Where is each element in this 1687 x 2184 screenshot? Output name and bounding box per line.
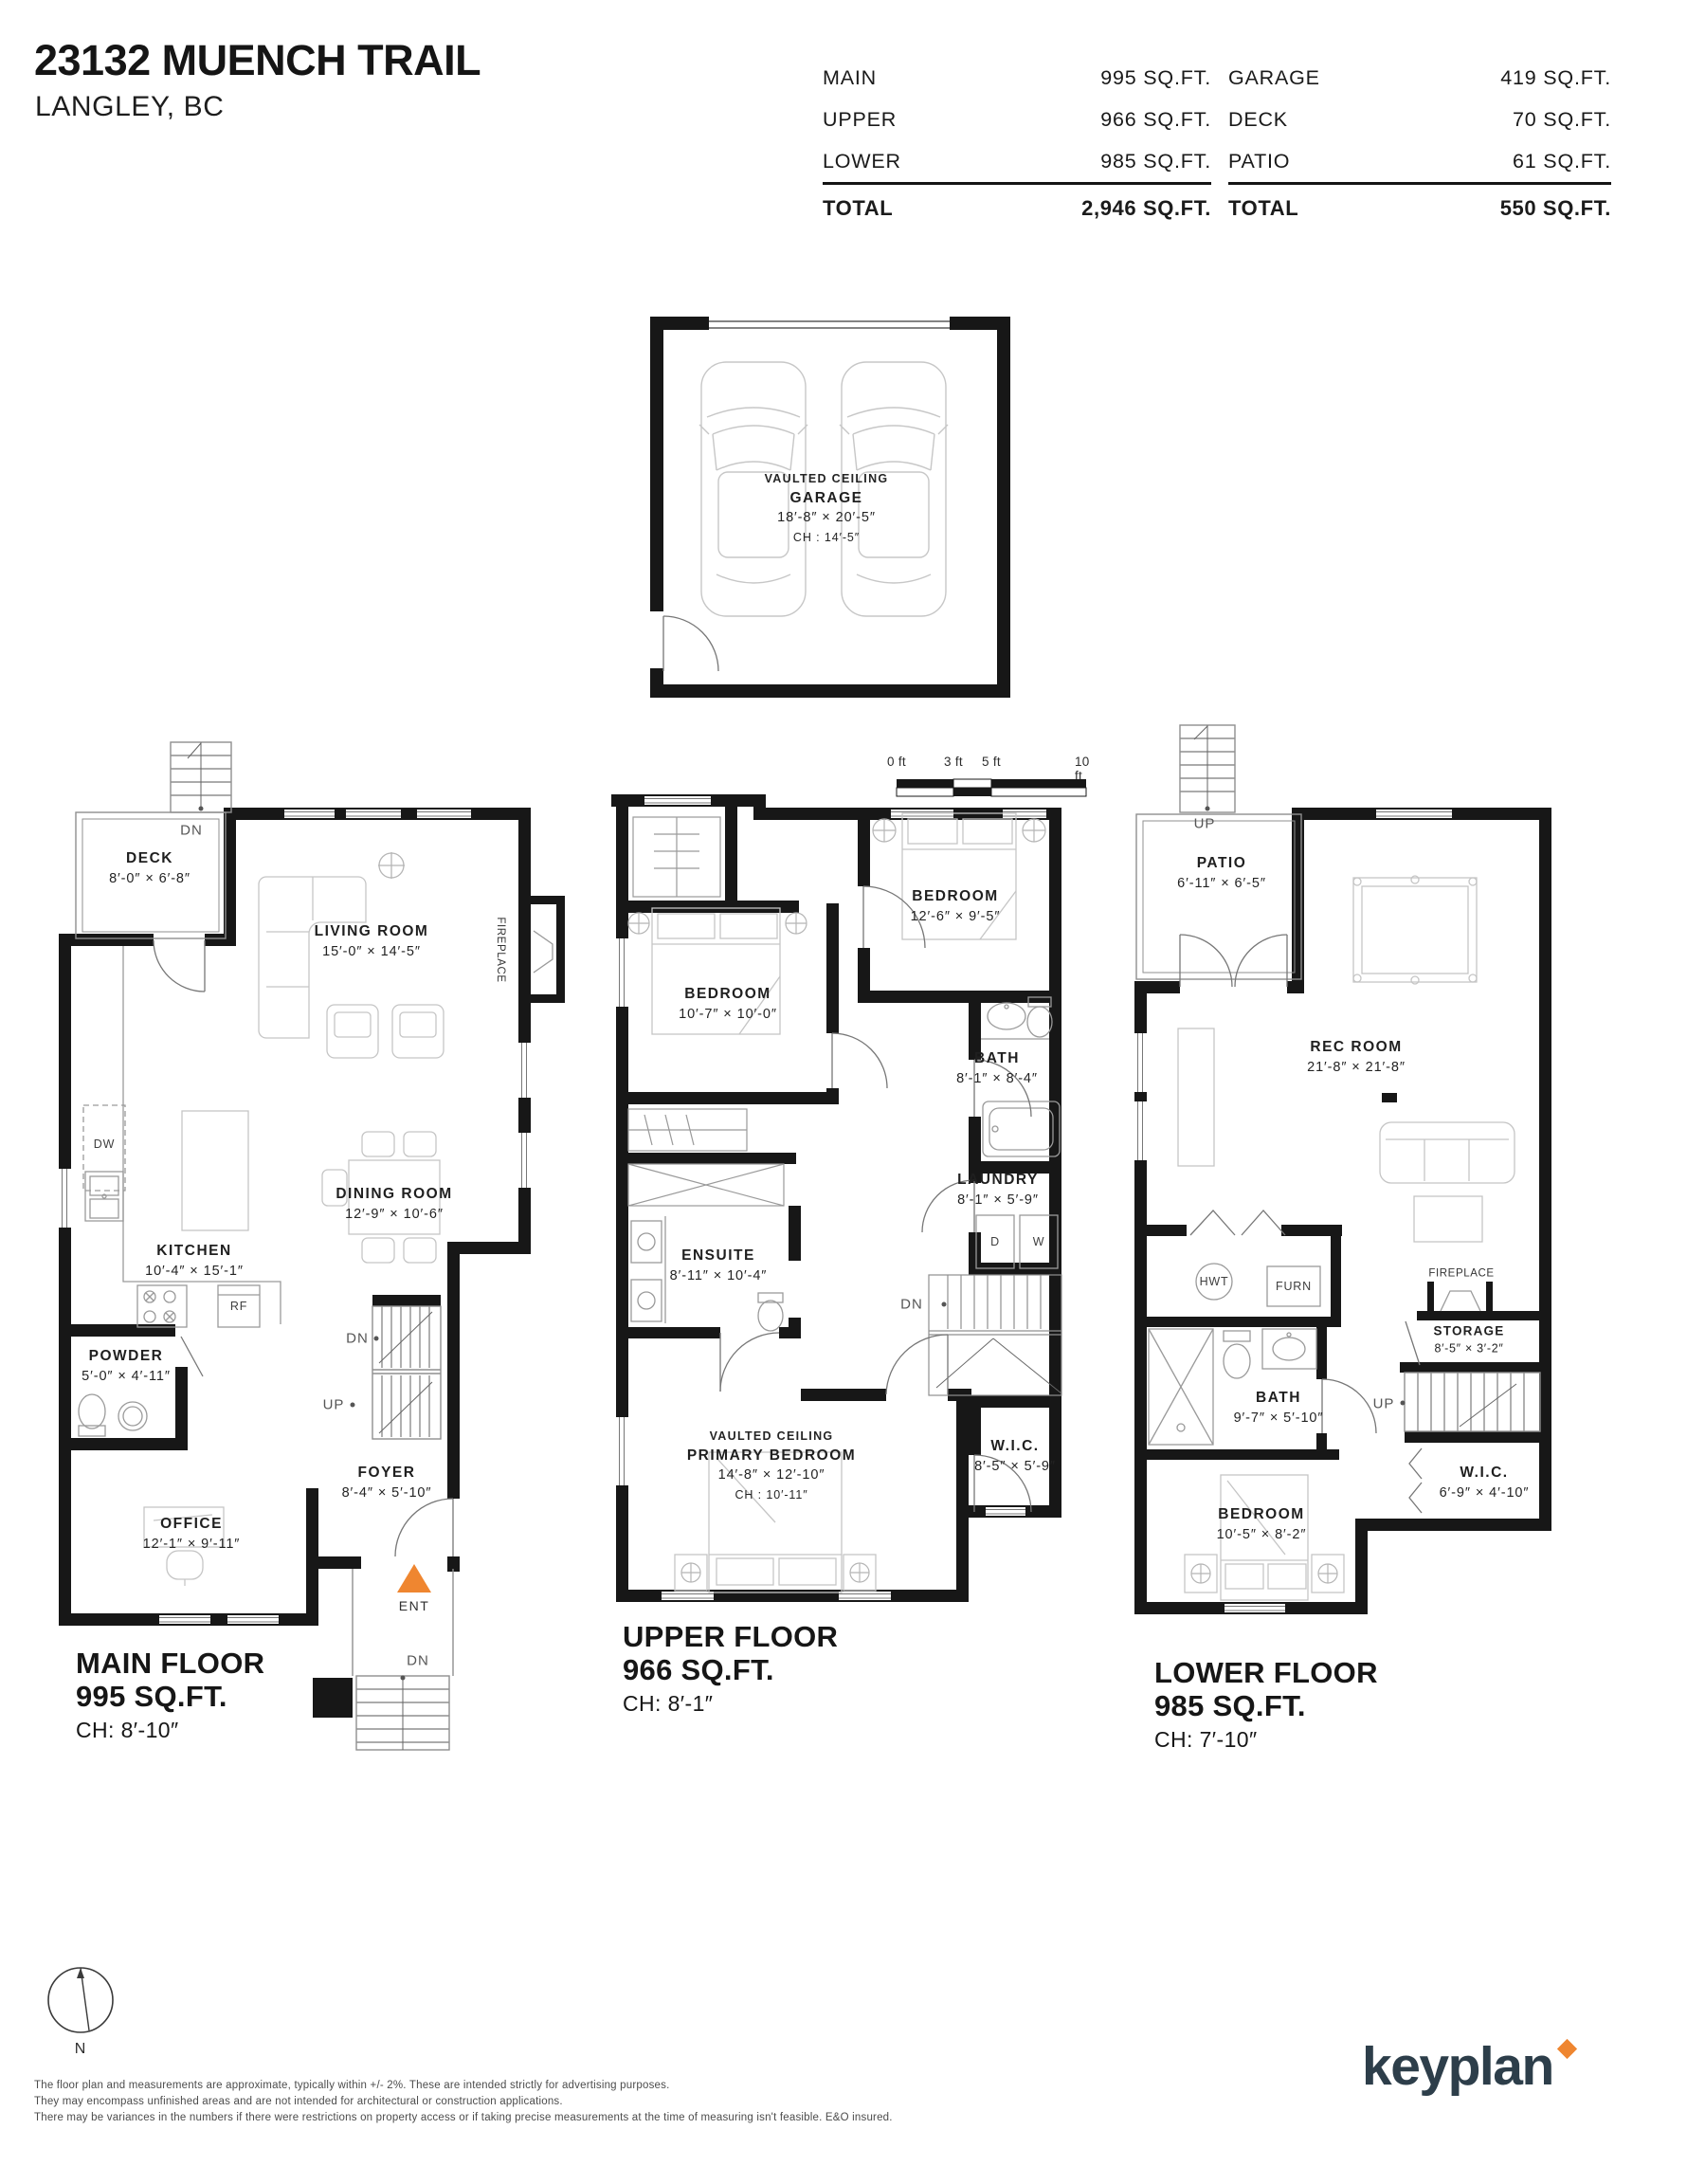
- floor-plan-page: 23132 MUENCH TRAIL LANGLEY, BC MAIN 995 …: [0, 0, 1687, 2184]
- scale-tick: 5 ft: [982, 755, 1001, 769]
- fireplace-label: FIREPLACE: [494, 917, 505, 982]
- main-deck-and-stairs: [76, 742, 453, 1750]
- dishwasher-label: DW: [94, 1138, 115, 1151]
- entry-arrow-icon: [397, 1564, 431, 1592]
- upper-floor-title: UPPER FLOOR 966 SQ.FT. CH: 8′-1″: [623, 1621, 838, 1717]
- lower-floor-title: LOWER FLOOR 985 SQ.FT. CH: 7′-10″: [1154, 1657, 1378, 1753]
- property-city: LANGLEY, BC: [35, 91, 224, 123]
- room-label-dining-room: DINING ROOM 12′-9″ × 10′-6″: [336, 1187, 452, 1221]
- washer-label: W: [1033, 1236, 1045, 1248]
- room-label-bedroom: BEDROOM 10′-7″ × 10′-0″: [679, 987, 777, 1021]
- room-label-bedroom: BEDROOM 12′-6″ × 9′-5″: [911, 889, 1001, 923]
- main-walls: [59, 808, 565, 1718]
- keyplan-logo-mark-icon: [1557, 2039, 1577, 2059]
- room-label-rec-room: REC ROOM 21′-8″ × 21′-8″: [1307, 1040, 1406, 1074]
- table-row: DECK 70 SQ.FT.: [1228, 99, 1611, 140]
- room-label-powder: POWDER 5′-0″ × 4′-11″: [82, 1349, 171, 1383]
- room-label-foyer: FOYER 8′-4″ × 5′-10″: [342, 1465, 432, 1500]
- scale-tick: 0 ft: [887, 755, 906, 769]
- stairs-dn-label: DN: [346, 1332, 369, 1346]
- dryer-label: D: [990, 1236, 1000, 1248]
- stairs-dn-label: DN: [900, 1298, 923, 1312]
- lower-doors: [1180, 935, 1422, 1513]
- room-label-storage: STORAGE 8′-5″ × 3′-2″: [1434, 1325, 1505, 1355]
- room-label-primary-bedroom: VAULTED CEILING PRIMARY BEDROOM 14′-8″ ×…: [687, 1430, 856, 1501]
- room-label-bedroom: BEDROOM 10′-5″ × 8′-2″: [1217, 1507, 1307, 1541]
- hot-water-tank-label: HWT: [1200, 1276, 1229, 1288]
- fridge-label: RF: [230, 1301, 247, 1313]
- room-label-kitchen: KITCHEN 10′-4″ × 15′-1″: [145, 1244, 244, 1278]
- room-label-bath: BATH 8′-1″ × 8′-4″: [956, 1051, 1038, 1085]
- stairs-up-label: UP: [323, 1398, 345, 1412]
- room-label-bath: BATH 9′-7″ × 5′-10″: [1234, 1391, 1324, 1425]
- room-label-deck: DECK 8′-0″ × 6′-8″: [109, 851, 190, 885]
- garage-entry-door: [663, 616, 718, 671]
- scale-tick: 3 ft: [944, 755, 963, 769]
- table-row: PATIO 61 SQ.FT.: [1228, 140, 1611, 182]
- room-label-office: OFFICE 12′-1″ × 9′-11″: [143, 1517, 241, 1551]
- lower-lamp-symbols: [1191, 1564, 1337, 1583]
- property-address: 23132 MUENCH TRAIL: [34, 36, 481, 85]
- stairs-up-label: UP: [1194, 817, 1216, 831]
- main-floor-title: MAIN FLOOR 995 SQ.FT. CH: 8′-10″: [76, 1647, 264, 1743]
- table-total-row: TOTAL 2,946 SQ.FT.: [823, 182, 1211, 232]
- table-row: LOWER 985 SQ.FT.: [823, 140, 1211, 182]
- room-label-ensuite: ENSUITE 8′-11″ × 10′-4″: [670, 1248, 768, 1283]
- stairs-up-label: UP: [1373, 1397, 1395, 1411]
- compass-north-label: N: [75, 2042, 87, 2057]
- stairs-dn-label: DN: [180, 824, 203, 838]
- room-label-garage: VAULTED CEILING GARAGE 18′-8″ × 20′-5″ C…: [765, 473, 889, 543]
- table-row: GARAGE 419 SQ.FT.: [1228, 57, 1611, 99]
- upper-stairs: [929, 1275, 1061, 1395]
- compass-icon: [35, 1964, 130, 2049]
- media-box: [1382, 1093, 1397, 1102]
- extras-area-table: GARAGE 419 SQ.FT. DECK 70 SQ.FT. PATIO 6…: [1228, 57, 1611, 232]
- keyplan-logo: keyplan: [1362, 2040, 1553, 2094]
- stairs-dn-label: DN: [407, 1654, 429, 1668]
- table-total-row: TOTAL 550 SQ.FT.: [1228, 182, 1611, 232]
- room-label-living-room: LIVING ROOM 15′-0″ × 14′-5″: [315, 924, 429, 958]
- entry-label: ENT: [399, 1599, 430, 1612]
- room-label-laundry: LAUNDRY 8′-1″ × 5′-9″: [957, 1173, 1039, 1207]
- garage-door-opening: [709, 321, 950, 328]
- table-row: UPPER 966 SQ.FT.: [823, 99, 1211, 140]
- fireplace-label: FIREPLACE: [1428, 1268, 1494, 1280]
- disclaimer-text: The floor plan and measurements are appr…: [34, 2078, 1124, 2126]
- room-label-wic: W.I.C. 6′-9″ × 4′-10″: [1440, 1465, 1530, 1500]
- furnace-label: FURN: [1276, 1281, 1312, 1293]
- floor-area-table: MAIN 995 SQ.FT. UPPER 966 SQ.FT. LOWER 9…: [823, 57, 1211, 232]
- room-label-patio: PATIO 6′-11″ × 6′-5″: [1177, 856, 1266, 890]
- room-label-wic: W.I.C. 8′-5″ × 5′-9″: [974, 1439, 1056, 1473]
- table-row: MAIN 995 SQ.FT.: [823, 57, 1211, 99]
